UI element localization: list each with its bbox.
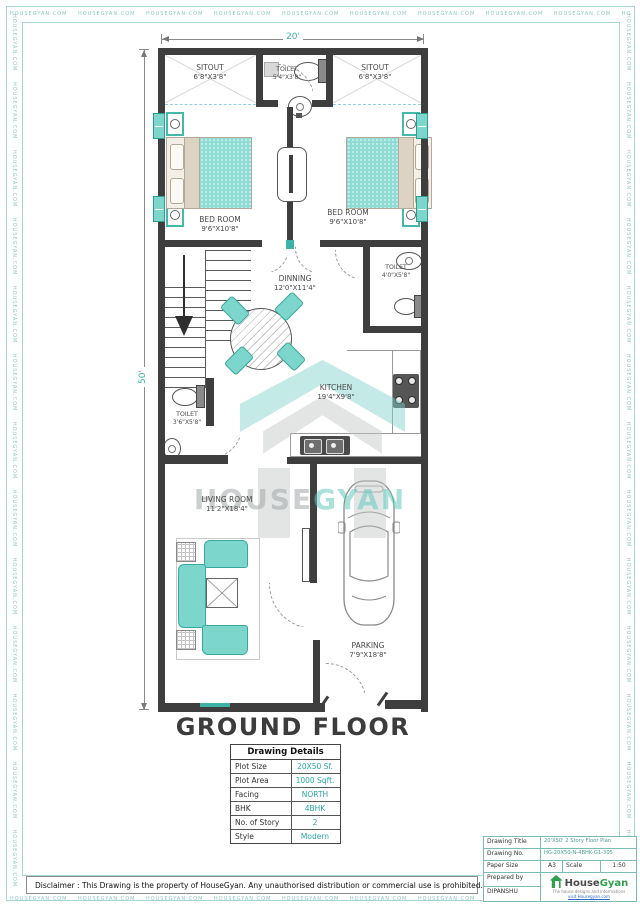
- floor-plan-sheet: { "page": { "border_watermark": "HOUSEGY…: [0, 0, 640, 905]
- details-table-title: Drawing Details: [231, 745, 340, 760]
- room-label-bed-right: BED ROOM 9'6"X10'8": [327, 208, 369, 227]
- brand-link[interactable]: visit Housegyan.com: [544, 894, 634, 899]
- drawing-details-table: Drawing Details Plot Size 20X50 Sf. Plot…: [230, 744, 341, 844]
- room-label-toilet-top: TOILET 5'4"X3'8": [273, 66, 301, 82]
- floor-title: GROUND FLOOR: [158, 713, 428, 741]
- window: [416, 196, 428, 222]
- drawing-no-value: HG-20X50-N-4BHK-G1-305: [541, 849, 636, 861]
- wall-outer-bottom-right: [385, 700, 428, 709]
- table-row: Plot Area 1000 Sqft.: [231, 774, 340, 788]
- table-row: Style Modern: [231, 830, 340, 843]
- watermark-strip-left: HOUSEGYAN.COM HOUSEGYAN.COM HOUSEGYAN.CO…: [9, 14, 18, 892]
- sitout-right-rail: [333, 104, 421, 105]
- sofa-single-bottom: [202, 625, 248, 655]
- bed-blanket: [200, 138, 251, 208]
- tv-unit: [302, 528, 310, 582]
- bed-fold: [184, 138, 200, 208]
- brand-gyan: Gyan: [600, 878, 629, 889]
- dim-arrow-left: [162, 36, 169, 42]
- stove: [393, 374, 419, 408]
- dim-height-label: 50': [138, 367, 148, 387]
- watermark-strip-top: HOUSEGYAN.COM HOUSEGYAN.COM HOUSEGYAN.CO…: [10, 10, 630, 19]
- room-label-dinning: DINNING 12'0"X11'4": [274, 274, 316, 293]
- room-label-living: LIVING ROOM 11'2"X18'4": [201, 495, 252, 514]
- room-label-parking: PARKING 7'9"X18'8": [349, 641, 386, 660]
- paper-size-value: A3: [541, 861, 563, 873]
- wall-toilet-mid-left: [363, 247, 370, 333]
- door-arc-toilet-lower: [210, 426, 240, 456]
- table-row: Facing NORTH: [231, 788, 340, 802]
- door-arc-bedroom-right: [295, 247, 320, 272]
- door-arc-living-parking: [269, 583, 313, 627]
- basin-tap: [296, 113, 302, 118]
- table-row: Plot Size 20X50 Sf.: [231, 760, 340, 774]
- wall-outer-top: [158, 48, 428, 55]
- dim-arrow-right: [417, 36, 424, 42]
- door-threshold-accent: [286, 240, 294, 249]
- watermark-strip-right: HOUSEGYAN.COM HOUSEGYAN.COM HOUSEGYAN.CO…: [623, 14, 632, 892]
- sink-drain: [331, 443, 336, 448]
- prepared-by-value: DIPANSHU: [484, 887, 541, 901]
- wall-toilet-mid-bottom: [363, 326, 428, 333]
- window: [153, 113, 165, 139]
- wall-living-top-left: [158, 455, 228, 464]
- room-label-toilet-mid: TOILET 4'0"X5'8": [382, 264, 410, 280]
- door-track: [289, 155, 293, 193]
- table-row: BHK 4BHK: [231, 802, 340, 816]
- wall-bedrooms-bottom-right: [320, 240, 428, 247]
- wall-outer-left: [158, 48, 165, 712]
- door-threshold-accent: [200, 703, 230, 707]
- stair-arrow-line: [183, 255, 185, 317]
- window: [153, 196, 165, 222]
- door-arc-bedroom-left: [262, 247, 287, 272]
- wall-outer-right: [421, 48, 428, 712]
- title-block: Drawing Title 20'X50' 2 Story Floor Plan…: [483, 836, 637, 902]
- wall-outer-bottom-left: [158, 703, 325, 712]
- housegyan-logo-icon: [550, 875, 563, 888]
- prepared-by-label: Prepared by: [484, 873, 541, 887]
- side-table: [176, 630, 196, 650]
- brand-house: House: [565, 878, 600, 889]
- room-label-kitchen: KITCHEN 19'4"X9'8": [317, 383, 354, 402]
- dim-width-label: 20': [283, 32, 303, 42]
- table-row: No. of Story 2: [231, 816, 340, 830]
- dim-arrow-up: [141, 50, 147, 57]
- wall-toilet-top-bottom-b: [312, 100, 333, 107]
- drawing-title-value: 20'X50' 2 Story Floor Plan: [541, 837, 636, 849]
- wall-kitchen-bottom: [287, 457, 428, 464]
- drawing-title-label: Drawing Title: [484, 837, 541, 849]
- wall-living-parking-lower: [313, 640, 320, 705]
- wall-toilet-lower-right: [206, 378, 214, 426]
- toilet-lower-wc-bowl: [172, 388, 198, 406]
- room-label-toilet-lower: TOILET 3'6"X5'8": [173, 411, 201, 427]
- bed-fold: [398, 138, 414, 208]
- room-label-sitout-left: SITOUT 6'8"X3'8": [194, 63, 227, 82]
- sofa-double-left: [178, 564, 206, 628]
- bed-left: [166, 137, 252, 209]
- door-arc-toilet-mid: [335, 250, 363, 278]
- kitchen-sink-unit: [300, 436, 350, 455]
- dim-arrow-down: [141, 703, 147, 710]
- room-label-sitout-right: SITOUT 6'8"X3'8": [359, 63, 392, 82]
- nightstand: [166, 112, 184, 136]
- toilet-lower-wc-tank: [196, 385, 205, 408]
- sofa-single-top: [204, 540, 248, 568]
- stair-divider: [205, 250, 206, 388]
- scale-label: Scale: [563, 861, 601, 873]
- wall-bedrooms-bottom-left: [158, 240, 262, 247]
- side-table: [176, 542, 196, 562]
- stair-arrow-head: [175, 316, 193, 336]
- sink-drain: [309, 443, 314, 448]
- pillow: [170, 178, 184, 204]
- paper-size-label: Paper Size: [484, 861, 541, 873]
- disclaimer-bar: Disclaimer : This Drawing is the propert…: [26, 876, 478, 894]
- drawing-no-label: Drawing No.: [484, 849, 541, 861]
- wall-toilet-top-bottom-a: [256, 100, 278, 107]
- pillow: [170, 144, 184, 170]
- scale-value: 1:50: [601, 861, 636, 873]
- room-label-bed-left: BED ROOM 9'6"X10'8": [199, 215, 241, 234]
- car: [338, 476, 400, 630]
- brand-cell: HouseGyan The house designs and informat…: [541, 873, 636, 901]
- window: [416, 113, 428, 139]
- sitout-left-rail: [165, 104, 256, 105]
- counter-edge: [347, 350, 393, 351]
- coffee-table: [206, 578, 238, 608]
- bed-blanket: [347, 138, 398, 208]
- bedroom-door-leaf: [277, 147, 307, 202]
- wall-living-parking-upper: [310, 457, 317, 583]
- door-arc-parking-gate: [325, 663, 365, 703]
